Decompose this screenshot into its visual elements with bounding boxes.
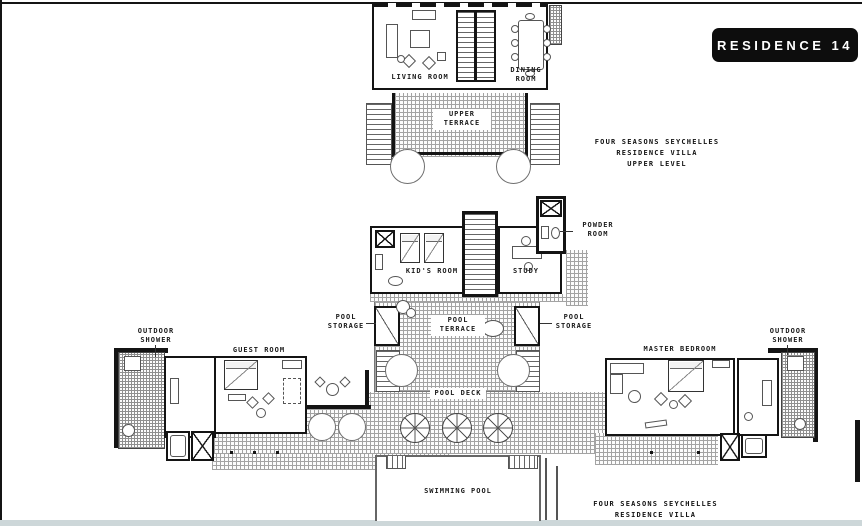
column-dot	[650, 451, 653, 454]
dining-chair	[511, 25, 519, 33]
pool-terrace-label: POOL TERRACE	[431, 315, 485, 336]
sofa	[610, 363, 644, 374]
rock	[482, 320, 504, 337]
master-bed	[668, 360, 704, 392]
outdoor-shower-left-label: OUTDOOR SHOWER	[124, 327, 188, 346]
title-line: RESIDENCE VILLA	[568, 510, 743, 521]
dresser	[375, 254, 383, 270]
pool-wall-line	[556, 466, 558, 520]
shower-leader-line	[155, 345, 156, 357]
shower	[720, 433, 740, 461]
dining-room-label: DINING ROOM	[508, 66, 544, 85]
bathtub	[741, 434, 767, 458]
upper-terrace-stair-left	[366, 103, 392, 165]
kids-bed	[424, 233, 444, 263]
column-dot	[253, 451, 256, 454]
upper-level-title: FOUR SEASONS SEYCHELLES RESIDENCE VILLA …	[572, 137, 742, 170]
frame-left-line	[0, 0, 2, 526]
main-stair	[462, 211, 498, 297]
upper-side-deck	[549, 5, 562, 45]
title-line: FOUR SEASONS SEYCHELLES	[568, 499, 743, 510]
column-dot	[697, 451, 700, 454]
pool-deck-hatch-right	[595, 433, 718, 465]
dining-chair	[511, 53, 519, 61]
pool-steps	[508, 456, 538, 469]
vanity	[762, 380, 772, 406]
dining-chair	[543, 53, 551, 61]
outdoor-shower-right-label: OUTDOOR SHOWER	[756, 327, 820, 346]
master-bathroom	[737, 358, 779, 436]
sofa	[386, 24, 398, 58]
stool	[388, 276, 403, 286]
patio-wall	[307, 405, 371, 409]
dining-chair	[543, 25, 551, 33]
shower	[191, 431, 214, 461]
side-table	[256, 408, 266, 418]
umbrella-icon	[483, 413, 513, 443]
tree-icon	[497, 354, 530, 387]
side-table	[628, 390, 641, 403]
dining-chair	[511, 39, 519, 47]
desk-chair	[521, 236, 531, 246]
bathtub	[166, 431, 190, 461]
walkway-hatch	[566, 250, 588, 306]
tree-icon	[390, 149, 425, 184]
toilet	[551, 227, 560, 239]
upper-terrace-stair-right	[530, 103, 560, 165]
shower-tray	[787, 356, 804, 371]
column-dot	[230, 451, 233, 454]
guest-bed	[224, 360, 258, 390]
upper-stair-rail	[474, 12, 477, 80]
coffee-table	[410, 30, 430, 48]
floor-plan-page: LIVING ROOM DINING ROOM UPPER TERRACE RE…	[0, 0, 862, 526]
umbrella-icon	[442, 413, 472, 443]
vanity	[170, 378, 179, 404]
pool-steps	[386, 456, 406, 469]
kids-room-label: KID'S ROOM	[404, 267, 460, 276]
powder-room-label: POWDER ROOM	[574, 221, 622, 240]
patio-table	[326, 383, 339, 396]
side-table	[437, 52, 446, 61]
sink	[541, 226, 549, 239]
tree-icon	[308, 413, 336, 441]
sofa-chaise	[610, 374, 623, 394]
sofa	[412, 10, 436, 20]
closet	[375, 230, 395, 248]
column-dot	[276, 451, 279, 454]
swimming-pool-label: SWIMMING POOL	[412, 487, 504, 496]
pool-storage-right-label: POOL STORAGE	[552, 313, 596, 332]
dining-chair	[525, 13, 535, 20]
powder-leader-line	[560, 231, 573, 232]
rock	[406, 308, 416, 318]
pool-deck-label: POOL DECK	[430, 388, 486, 399]
residence-badge: RESIDENCE 14	[712, 28, 858, 62]
kids-bed	[400, 233, 420, 263]
master-bedroom-label: MASTER BEDROOM	[638, 345, 722, 354]
tree-icon	[338, 413, 366, 441]
pool-storage-left	[374, 306, 400, 346]
main-level-title: FOUR SEASONS SEYCHELLES RESIDENCE VILLA	[568, 499, 743, 521]
pool-storage-left-label: POOL STORAGE	[326, 313, 366, 332]
living-room-label: LIVING ROOM	[390, 73, 450, 82]
side-table	[397, 55, 405, 63]
frame-right-bar	[855, 420, 860, 482]
title-line: UPPER LEVEL	[572, 159, 742, 170]
wardrobe	[712, 360, 730, 368]
shower-leader-line	[787, 345, 788, 355]
sofa	[282, 360, 302, 369]
title-line: FOUR SEASONS SEYCHELLES	[572, 137, 742, 148]
shower-tray	[124, 356, 141, 371]
study-label: STUDY	[504, 267, 548, 276]
pool-wall-line	[545, 458, 547, 520]
dining-chair	[543, 39, 551, 47]
side-table	[669, 400, 678, 409]
powder-shower	[540, 200, 562, 217]
toilet	[744, 412, 753, 421]
drain	[794, 418, 806, 430]
storage-leader-line	[366, 323, 376, 324]
bench	[228, 394, 246, 401]
drain	[122, 424, 135, 437]
dining-table	[518, 20, 544, 70]
storage-leader-line	[540, 323, 552, 324]
upper-terrace-label: UPPER TERRACE	[433, 109, 491, 130]
guest-room-label: GUEST ROOM	[228, 346, 290, 355]
rug	[283, 378, 301, 404]
pool-storage-right	[514, 306, 540, 346]
umbrella-icon	[400, 413, 430, 443]
patio-wall	[365, 370, 369, 409]
tree-icon	[385, 354, 418, 387]
upper-room-window-wall	[372, 3, 548, 7]
tree-icon	[496, 149, 531, 184]
title-line: RESIDENCE VILLA	[572, 148, 742, 159]
